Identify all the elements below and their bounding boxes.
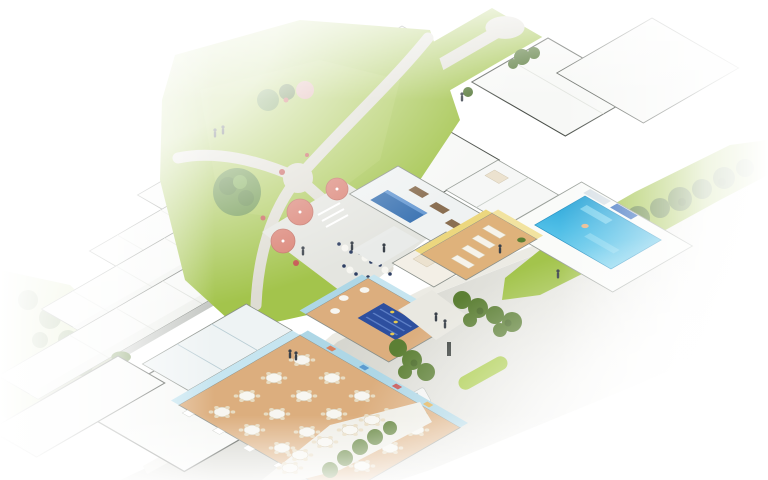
fade-bottom-right	[0, 0, 768, 480]
fade-overlays	[0, 0, 768, 480]
site-rendering	[0, 0, 768, 480]
site-rendering-canvas	[0, 0, 768, 480]
